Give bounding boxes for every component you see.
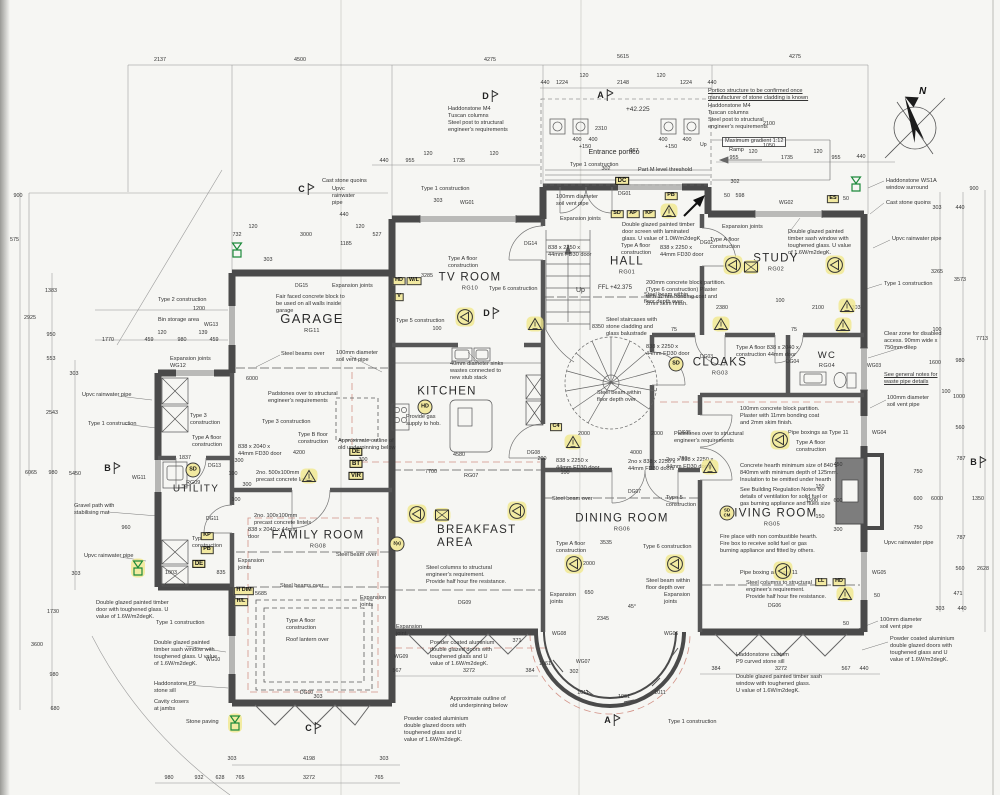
room-name: STUDY: [753, 253, 798, 265]
dimension-label: 50: [843, 196, 849, 202]
annotation: Expansion joints: [550, 592, 576, 606]
dimension-label: 527: [373, 232, 382, 238]
annotation: WG11: [132, 475, 146, 481]
dimension-label: 4198: [303, 756, 315, 762]
annotation: +42.225: [626, 106, 650, 114]
annotation: Type A floor construction: [286, 618, 316, 632]
symbol-tag: H DIM: [234, 587, 254, 595]
dimension-label: 440: [708, 80, 717, 86]
symbol-tag: W/L: [407, 277, 422, 285]
annotation: Type A floor construction: [448, 256, 478, 270]
dimension-label: 680: [51, 706, 60, 712]
dimension-label: 384: [526, 668, 535, 674]
annotation: Type A floor construction: [710, 237, 740, 251]
dimension-label: 787: [957, 535, 966, 541]
dimension-label: 2000: [651, 431, 663, 437]
dimension-label: 303: [434, 198, 443, 204]
dimension-label: 2380: [716, 305, 728, 311]
symbol-tag: VIR: [348, 472, 363, 480]
annotation: Type B floor construction: [298, 432, 328, 446]
annotation: 100mm diameter soil vent pipe: [880, 617, 922, 631]
dimension-label: 2345: [597, 616, 609, 622]
room-ref: RG06: [575, 527, 669, 533]
section-marker-b: B: [104, 462, 120, 474]
annotation: Up: [700, 142, 707, 149]
section-flag-icon: [978, 456, 986, 468]
extract-fan-icon: [826, 256, 845, 275]
dimension-label: 3272: [463, 668, 475, 674]
room-label: FAMILY ROOMRG08: [271, 530, 364, 551]
dimension-label: 3265: [931, 269, 943, 275]
annotation: WG07: [576, 659, 590, 665]
annotation: Double glazed painted timber door with t…: [96, 600, 169, 621]
dimension-label: 1011: [577, 690, 589, 696]
annotation: WG06: [664, 631, 678, 637]
dimension-label: 1185: [340, 241, 352, 247]
dimension-label: 980: [178, 337, 187, 343]
dimension-label: 303: [264, 257, 273, 263]
annotation: Type 1 construction: [421, 186, 470, 193]
annotation: DG13: [208, 463, 221, 469]
dimension-label: 567: [393, 668, 402, 674]
dimension-label: 3000: [300, 232, 312, 238]
dimension-label: 120: [249, 224, 258, 230]
dimension-label: 7700: [425, 469, 437, 475]
dimension-label: 955: [406, 158, 415, 164]
annotation: Expansion joints: [332, 283, 373, 290]
dimension-label: 459: [210, 337, 219, 343]
annotation: Expansion joints: [722, 224, 763, 231]
warning-triangle-icon: [661, 204, 678, 219]
symbol-tag: PB: [665, 192, 678, 200]
annotation: Haddonstone M4 Tuscan columns Steel post…: [708, 103, 768, 132]
dimension-label: 2148: [617, 80, 629, 86]
annotation: WG13: [204, 322, 218, 328]
room-label: CLOAKSRG03: [693, 357, 747, 378]
annotation: WG10: [206, 657, 220, 663]
dimension-label: 6000: [931, 496, 943, 502]
dimension-label: 980: [956, 358, 965, 364]
annotation: Maximum gradient 1:12: [722, 137, 786, 147]
section-letter: B: [104, 463, 111, 473]
dimension-label: 765: [236, 775, 245, 781]
room-label: TV ROOMRG10: [439, 272, 502, 293]
dimension-label: 955: [832, 155, 841, 161]
annotation: Haddonstone WS1A window surround: [886, 178, 937, 192]
section-marker-c: C: [305, 722, 321, 734]
dimension-label: 50: [874, 593, 880, 599]
dimension-label: 3535: [600, 540, 612, 546]
dimension-label: 2925: [24, 315, 36, 321]
annotation: Steel beam within floor depth over: [597, 390, 641, 404]
section-letter: D: [483, 308, 490, 318]
dimension-label: 1770: [102, 337, 114, 343]
dimension-label: 750: [914, 525, 923, 531]
warning-triangle-icon: [837, 587, 854, 602]
annotation: Provide gas supply to hob.: [406, 414, 441, 428]
dimension-label: 2543: [46, 410, 58, 416]
symbol-tag: DE: [192, 560, 205, 568]
room-label: GARAGERG11: [280, 312, 343, 334]
dimension-label: 100: [232, 497, 241, 503]
room-name: FAMILY ROOM: [271, 530, 364, 542]
dimension-label: 440: [958, 606, 967, 612]
annotation: Steel beams over: [280, 583, 324, 590]
warning-triangle-icon: [713, 317, 730, 332]
section-flag-icon: [491, 307, 499, 319]
annotation: Steel columns to structural engineer's r…: [426, 565, 506, 586]
section-letter: D: [482, 91, 489, 101]
room-label: Entrance portico: [589, 149, 640, 157]
section-flag-icon: [605, 89, 613, 101]
section-flag-icon: [313, 722, 321, 734]
annotation: Pipe boxings as Type 11: [788, 430, 848, 437]
dimension-label: 628: [216, 775, 225, 781]
symbol-tag: ES: [827, 195, 839, 203]
section-flag-icon: [306, 183, 314, 195]
dimension-label: 100: [942, 389, 951, 395]
dimension-label: 302: [570, 669, 579, 675]
dimension-label: 1350: [972, 496, 984, 502]
annotation: Expansion joints: [360, 595, 386, 609]
room-label: KITCHEN: [417, 385, 477, 398]
annotation: 2no x 838 x 2250 x 44mm FD30 doors: [628, 459, 675, 473]
symbol-tag: HD: [418, 400, 433, 415]
annotation: 100mm diameter soil vent pipe: [556, 194, 598, 208]
symbol-tag: PB: [201, 546, 214, 554]
dimension-label: 5615: [617, 54, 629, 60]
section-marker-d: D: [483, 307, 499, 319]
dimension-label: 3272: [775, 666, 787, 672]
room-ref: RG05: [727, 522, 818, 528]
dimension-label: 6065: [25, 470, 37, 476]
annotation: Haddonstone P9 stone sill: [154, 681, 196, 695]
extract-fan-icon: [666, 555, 685, 574]
dimension-label: 302: [731, 179, 740, 185]
dimension-label: 303: [228, 756, 237, 762]
section-letter: A: [597, 90, 604, 100]
annotation: Ramp: [729, 147, 744, 154]
symbol-tag: BT: [350, 460, 363, 468]
section-flag-icon: [490, 90, 498, 102]
annotation: Steel staircases with stone cladding and…: [606, 317, 657, 338]
dimension-label: +150: [665, 144, 677, 150]
annotation: 40mm diameter sinks wastes connected to …: [450, 361, 503, 382]
annotation: Expansion joints: [560, 216, 601, 223]
dimension-label: 3285: [421, 273, 433, 279]
north-label: N: [919, 86, 926, 97]
dimension-label: 2137: [154, 57, 166, 63]
symbol-tag: SD CM: [720, 506, 735, 521]
dimension-label: 371: [513, 638, 522, 644]
dimension-label: 300: [235, 458, 244, 464]
symbol-tag: SD: [611, 210, 624, 218]
dimension-label: 100: [776, 298, 785, 304]
annotation: DG04: [786, 359, 799, 365]
floor-plan-sheet: Cast stone quoinsUpvc rainwater pipeType…: [0, 0, 1000, 795]
annotation: Upvc rainwater pipe: [84, 553, 133, 560]
section-flag-icon: [112, 462, 120, 474]
annotation: FFL +42.375: [598, 285, 632, 293]
junction-box-icon: [743, 260, 760, 274]
annotation: Cavity closers at jambs: [154, 699, 189, 713]
symbol-tag: C4: [550, 423, 562, 431]
dimension-label: 459: [145, 337, 154, 343]
dimension-label: 50: [843, 621, 849, 627]
section-marker-b: B: [970, 456, 986, 468]
section-flag-icon: [612, 714, 620, 726]
dimension-label: 303: [70, 371, 79, 377]
warning-triangle-icon: [301, 469, 318, 484]
dimension-label: 1735: [453, 158, 465, 164]
dimension-label: 75: [791, 327, 797, 333]
dimension-label: 787: [957, 456, 966, 462]
dimension-label: 6000: [246, 376, 258, 382]
annotation: Type 6 construction: [643, 544, 692, 551]
dimension-label: 1730: [47, 609, 59, 615]
annotation: DG11: [206, 516, 219, 522]
warning-triangle-icon: [839, 299, 856, 314]
room-ref: RG10: [439, 286, 502, 292]
dimension-label: 400: [659, 137, 668, 143]
annotation: Upvc rainwater pipe: [82, 392, 131, 399]
room-name: GARAGE: [280, 311, 343, 326]
dimension-label: 1735: [781, 155, 793, 161]
annotation: Type A floor construction: [556, 541, 586, 555]
dimension-label: 900: [970, 186, 979, 192]
dimension-label: 1011: [654, 690, 666, 696]
annotation: WG04: [872, 430, 886, 436]
dimension-label: 1061: [618, 694, 630, 700]
section-marker-c: C: [298, 183, 314, 195]
dimension-label: 50: [724, 193, 730, 199]
dimension-label: 955: [730, 155, 739, 161]
annotation: DG09: [458, 600, 471, 606]
annotation: Double glazed painted timber sash window…: [736, 674, 822, 695]
annotation: Type 1 construction: [884, 281, 933, 288]
dimension-label: 750: [914, 469, 923, 475]
room-name: TV ROOM: [439, 272, 502, 284]
room-name: WC: [818, 350, 836, 361]
annotation: Upvc rainwater pipe: [892, 236, 941, 243]
room-name: CLOAKS: [693, 357, 747, 369]
dimension-label: 900: [14, 193, 23, 199]
warning-triangle-icon: [702, 460, 719, 475]
dimension-label: 8350: [592, 324, 604, 330]
annotation: 2no. 100x100mm precast concrete lintels: [254, 513, 311, 527]
dimension-label: 1575: [7, 237, 19, 243]
annotation: Type 5 construction: [666, 495, 696, 509]
dimension-label: 567: [842, 666, 851, 672]
dimension-label: 932: [195, 775, 204, 781]
dimension-label: 765: [375, 775, 384, 781]
annotation: Clear zone for disabled access. 90mm wid…: [884, 331, 942, 352]
annotation: Double glazed painted timber sash window…: [154, 640, 217, 669]
annotation: Powder coated aluminium double glazed do…: [890, 636, 954, 665]
dimension-label: 471: [954, 591, 963, 597]
dimension-label: 303: [933, 205, 942, 211]
dimension-label: 5685: [255, 591, 267, 597]
room-label: DINING ROOMRG06: [575, 513, 669, 534]
dimension-label: 100: [229, 471, 238, 477]
section-letter: B: [970, 457, 977, 467]
annotation: DG01: [618, 191, 631, 197]
annotation: Haddonstone custom P9 curved stone sill: [736, 652, 789, 666]
dimension-label: 4200: [293, 450, 305, 456]
dimension-label: 400: [683, 137, 692, 143]
annotation: DG15: [295, 283, 308, 289]
dimension-label: 980: [165, 775, 174, 781]
annotation: Roof lantern over: [286, 637, 329, 644]
dimension-label: 303: [314, 694, 323, 700]
dimension-label: 650: [585, 590, 594, 596]
warning-triangle-icon: [565, 435, 582, 450]
annotation: DG14: [524, 241, 537, 247]
dimension-label: 4500: [294, 57, 306, 63]
annotation: Type 1 construction: [570, 162, 619, 169]
room-name: KITCHEN: [417, 385, 477, 397]
dimension-label: 100: [933, 327, 942, 333]
dimension-label: 303: [72, 571, 81, 577]
dimension-label: 960: [122, 525, 131, 531]
room-ref: RG01: [610, 270, 644, 276]
dimension-label: 440: [860, 666, 869, 672]
annotation: WG08: [552, 631, 566, 637]
annotation: Up: [576, 287, 585, 296]
symbol-tag: V: [395, 293, 404, 301]
dimension-label: 450: [834, 462, 843, 468]
junction-box-icon: [434, 508, 451, 522]
extract-fan-icon: [565, 555, 584, 574]
dimension-label: 100: [561, 470, 570, 476]
room-ref: RG11: [280, 328, 343, 334]
room-name: LIVING ROOM: [727, 508, 818, 520]
annotation: Expansion joint: [396, 624, 422, 638]
annotation: Padstones over to structural engineer's …: [268, 391, 338, 405]
dimension-label: 4275: [789, 54, 801, 60]
annotation: 838 x 2040 x 44mm FD30 door: [238, 444, 282, 458]
dimension-label: 732: [233, 232, 242, 238]
annotation: 838 x 2250 x 44mm FD30 door: [548, 245, 592, 259]
dimension-label: 303: [936, 606, 945, 612]
annotation: Fire place with non combustible hearth. …: [720, 534, 817, 555]
dimension-label: 4000: [630, 450, 642, 456]
dimension-label: 2628: [977, 566, 989, 572]
symbol-tag: DC: [615, 177, 629, 185]
warning-triangle-icon: [527, 317, 544, 332]
room-name: HALL: [610, 256, 644, 268]
dimension-label: 120: [356, 224, 365, 230]
dimension-label: 302: [602, 166, 611, 172]
annotation: 838 x 2250 x 44mm FD30 door: [646, 344, 690, 358]
dimension-label: 950: [47, 332, 56, 338]
annotation: DG10: [300, 690, 313, 696]
dimension-label: 150: [816, 484, 825, 490]
dimension-label: 75: [671, 327, 677, 333]
dimension-label: 440: [541, 80, 550, 86]
symbol-tag: AP: [627, 210, 640, 218]
dimension-label: 384: [712, 666, 721, 672]
dimension-label: 440: [956, 205, 965, 211]
annotation: Stone paving: [186, 719, 219, 726]
symbol-tag: SD: [669, 357, 684, 372]
symbol-tag: LL: [815, 578, 827, 586]
room-ref: RG04: [818, 363, 836, 369]
annotation: Steel beam within floor depth over: [646, 578, 690, 592]
annotation: Approximate outline of old underpinning …: [338, 438, 396, 452]
dimension-label: 980: [49, 470, 58, 476]
section-marker-a: A: [597, 89, 613, 101]
section-letter: C: [298, 184, 305, 194]
extract-fan-icon: [774, 562, 793, 581]
symbol-tag: SD: [186, 463, 201, 478]
dimension-label: 598: [736, 193, 745, 199]
dimension-label: 1003: [165, 570, 177, 576]
dimension-label: 3272: [303, 775, 315, 781]
dimension-label: 5450: [69, 471, 81, 477]
dimension-label: 835: [217, 570, 226, 576]
warning-triangle-icon: [835, 318, 852, 333]
dimension-label: 1383: [45, 288, 57, 294]
room-ref: RG08: [271, 544, 364, 550]
dimension-label: 3600: [31, 642, 43, 648]
dimension-label: 1200: [193, 306, 205, 312]
annotation: Type A floor construction: [796, 440, 826, 454]
section-letter: A: [604, 715, 611, 725]
room-ref: RG03: [693, 371, 747, 377]
annotation: Cast stone quoins: [886, 200, 931, 207]
extract-fan-icon: [771, 431, 790, 450]
annotation: 100mm concrete block partition. Plaster …: [740, 406, 819, 427]
dimension-label: 980: [50, 672, 59, 678]
room-name: DINING ROOM: [575, 513, 669, 525]
annotation: DG06: [768, 603, 781, 609]
annotation: Powder coated aluminium double glazed do…: [430, 640, 494, 669]
dimension-label: 300: [834, 527, 843, 533]
room-label: WCRG04: [818, 351, 836, 369]
annotation: Type 5 construction: [396, 318, 445, 325]
annotation: Type A floor construction: [192, 435, 222, 449]
surveyor-mark-icon: [231, 242, 243, 259]
annotation: 100mm diameter soil vent pipe: [336, 350, 378, 364]
annotation: Double glazed painted timber door screen…: [622, 222, 700, 243]
symbol-tag: H/L: [234, 598, 248, 606]
dimension-label: 760: [679, 456, 688, 462]
annotation: Steel columns to structural engineer's r…: [746, 580, 826, 601]
symbol-tag: HD: [393, 277, 406, 285]
room-ref: RG02: [753, 267, 798, 273]
dimension-label: 2100: [812, 305, 824, 311]
room-name: UTILITY: [173, 483, 219, 494]
dimension-label: 2100: [763, 121, 775, 127]
dimension-label: 1224: [556, 80, 568, 86]
annotation: RG07: [464, 473, 478, 480]
annotation: 838 x 2250 x 44mm FD30 door: [660, 245, 704, 259]
dimension-label: 440: [380, 158, 389, 164]
section-marker-d: D: [482, 90, 498, 102]
labels-layer: Cast stone quoinsUpvc rainwater pipeType…: [0, 0, 1000, 795]
surveyor-mark-icon: [850, 176, 862, 193]
annotation: Expansion joints WG12: [170, 356, 211, 370]
dimension-label: 120: [814, 149, 823, 155]
annotation: Steel beam over: [552, 496, 593, 503]
dimension-label: 4580: [453, 452, 465, 458]
dimension-label: 139: [199, 330, 208, 336]
symbol-tag: KP: [201, 532, 214, 540]
dimension-label: 440: [340, 212, 349, 218]
annotation: Gravel path with stabilising mat: [74, 503, 114, 517]
section-marker-a: A: [604, 714, 620, 726]
